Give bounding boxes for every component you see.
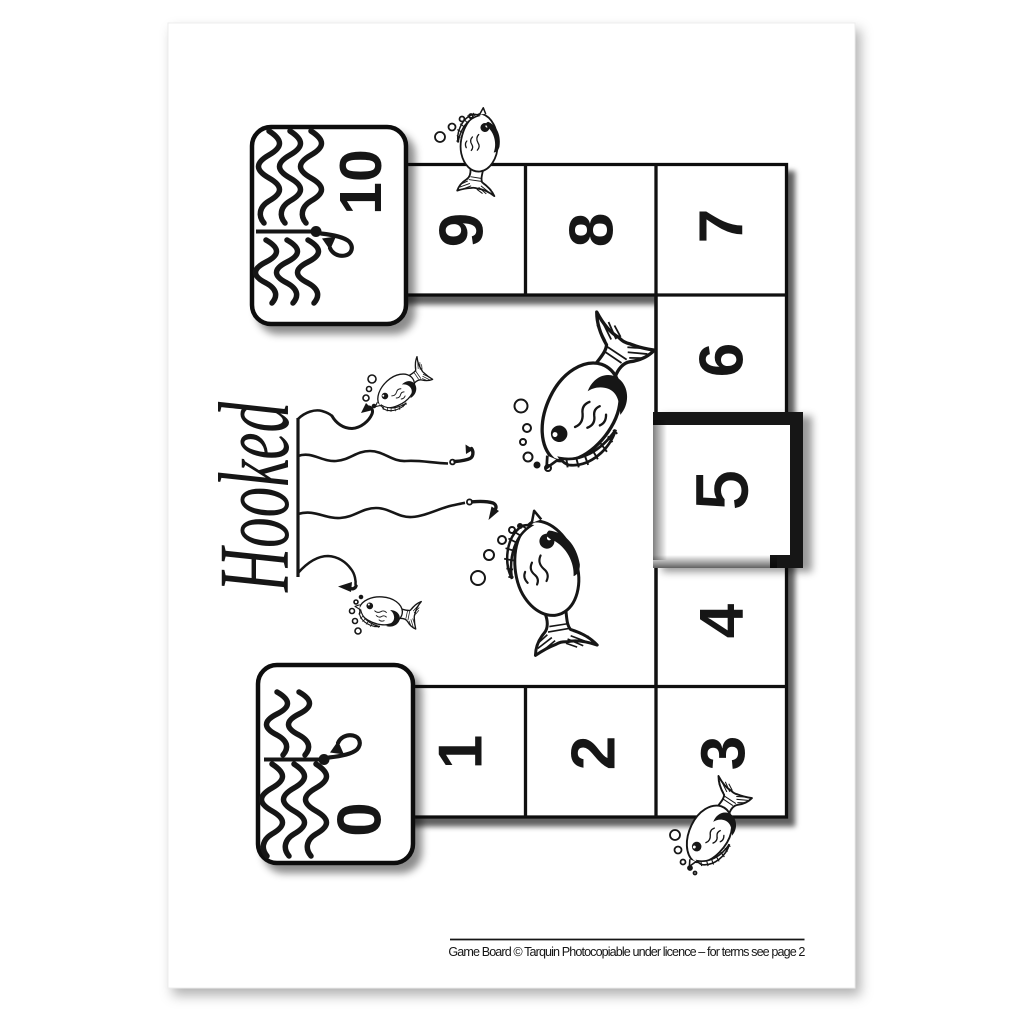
svg-text:6: 6	[688, 343, 757, 377]
svg-text:8: 8	[558, 213, 627, 247]
svg-text:Hooked: Hooked	[200, 402, 311, 593]
svg-text:3: 3	[690, 736, 759, 770]
svg-text:1: 1	[427, 735, 496, 769]
svg-text:4: 4	[688, 603, 757, 638]
svg-text:Game Board © Tarquin Photocopi: Game Board © Tarquin Photocopiable under…	[448, 945, 805, 959]
svg-text:7: 7	[688, 209, 757, 243]
svg-text:5: 5	[683, 470, 763, 510]
svg-text:0: 0	[326, 802, 395, 836]
svg-text:9: 9	[428, 213, 497, 247]
svg-text:2: 2	[560, 736, 629, 770]
svg-text:10: 10	[328, 149, 394, 215]
